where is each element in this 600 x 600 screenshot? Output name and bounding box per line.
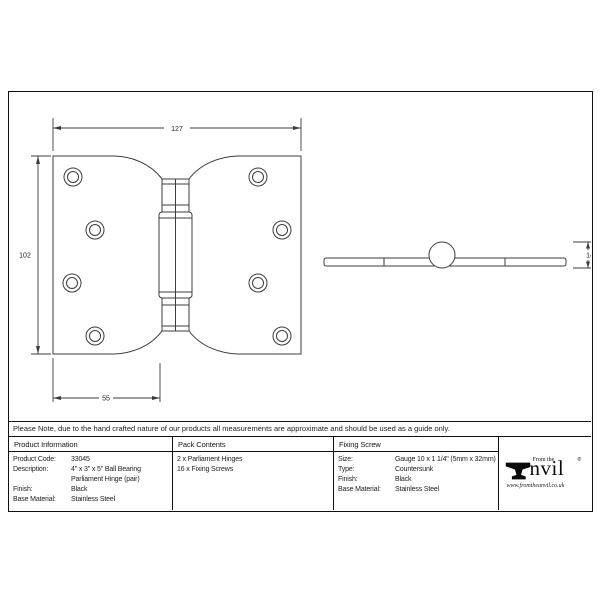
row-value: Black (395, 475, 496, 485)
row-value: Gauge 10 x 1 1/4" (5mm x 32mm) (395, 455, 496, 465)
from-the-anvil-logo: From the nvil ® www.fromtheanvil.co.uk (504, 454, 586, 494)
row-label: Base Material: (338, 485, 395, 495)
screw-hole (249, 168, 267, 186)
table-row: Base Material: Stainless Steel (338, 485, 496, 495)
screw-hole (86, 221, 104, 239)
screw-hole (63, 274, 81, 292)
screw-hole (86, 327, 104, 345)
row-label: Finish: (338, 475, 395, 485)
fixing-screw-body: Size: Gauge 10 x 1 1/4" (5mm x 32mm) Typ… (334, 452, 498, 495)
table-row: Base Material: Stainless Steel (13, 495, 170, 505)
fixing-screw-header: Fixing Screw (334, 437, 498, 452)
logo-brand-text: nvil (530, 456, 565, 480)
row-label: Finish: (13, 485, 71, 495)
product-drawing-page: 127 102 55 (0, 0, 600, 600)
screw-hole (249, 274, 267, 292)
row-label: Size: (338, 455, 395, 465)
technical-drawing: 127 102 55 (9, 92, 591, 421)
height-dimension-label: 102 (19, 253, 31, 260)
row-value: 4" x 3" x 5" Ball Bearing Parliament Hin… (71, 465, 170, 485)
pack-contents-item: 2 x Parliament Hinges (177, 455, 331, 465)
row-value: Black (71, 485, 170, 495)
row-value: 33045 (71, 455, 170, 465)
pack-contents-column: Pack Contents 2 x Parliament Hinges 16 x… (173, 437, 334, 510)
row-value: Countersunk (395, 465, 496, 475)
row-label: Description: (13, 465, 71, 485)
screw-hole (64, 168, 82, 186)
hinge-knuckle (159, 179, 192, 331)
offset-dimension: 55 (53, 358, 160, 403)
pack-contents-header: Pack Contents (173, 437, 333, 452)
width-dimension-label: 127 (171, 126, 183, 133)
row-label: Base Material: (13, 495, 71, 505)
table-row: Description: 4" x 3" x 5" Ball Bearing P… (13, 465, 170, 485)
barrel-diameter-label: 14 (586, 253, 591, 260)
width-dimension: 127 (53, 118, 301, 151)
registered-mark: ® (578, 457, 582, 463)
product-information-header: Product Information (9, 437, 172, 452)
pack-contents-item: 16 x Fixing Screws (177, 465, 331, 475)
row-label: Product Code: (13, 455, 71, 465)
row-value: Stainless Steel (395, 485, 496, 495)
product-information-body: Product Code: 33045 Description: 4" x 3"… (9, 452, 172, 505)
offset-dimension-label: 55 (102, 396, 110, 403)
table-row: Type: Countersunk (338, 465, 496, 475)
drawing-frame: 127 102 55 (8, 91, 593, 512)
spec-table: Product Information Product Code: 33045 … (9, 437, 591, 510)
product-information-column: Product Information Product Code: 33045 … (9, 437, 173, 510)
measurement-note: Please Note, due to the hand crafted nat… (9, 421, 591, 437)
anvil-icon (505, 459, 531, 483)
table-row: Size: Gauge 10 x 1 1/4" (5mm x 32mm) (338, 455, 496, 465)
pack-contents-body: 2 x Parliament Hinges 16 x Fixing Screws (173, 452, 333, 475)
barrel-diameter-dimension: 14 (573, 242, 591, 268)
table-row: Finish: Black (338, 475, 496, 485)
row-label: Type: (338, 465, 395, 475)
brand-logo-cell: From the nvil ® www.fromtheanvil.co.uk (499, 437, 590, 510)
height-dimension: 102 (19, 156, 51, 354)
screw-hole (273, 327, 291, 345)
logo-website: www.fromtheanvil.co.uk (507, 483, 565, 489)
fixing-screw-column: Fixing Screw Size: Gauge 10 x 1 1/4" (5m… (334, 437, 499, 510)
hinge-side-view (324, 242, 566, 268)
screw-hole (273, 221, 291, 239)
hinge-front-view (53, 156, 301, 354)
table-row: Finish: Black (13, 485, 170, 495)
side-view-barrel (429, 242, 455, 268)
row-value: Stainless Steel (71, 495, 170, 505)
table-row: Product Code: 33045 (13, 455, 170, 465)
